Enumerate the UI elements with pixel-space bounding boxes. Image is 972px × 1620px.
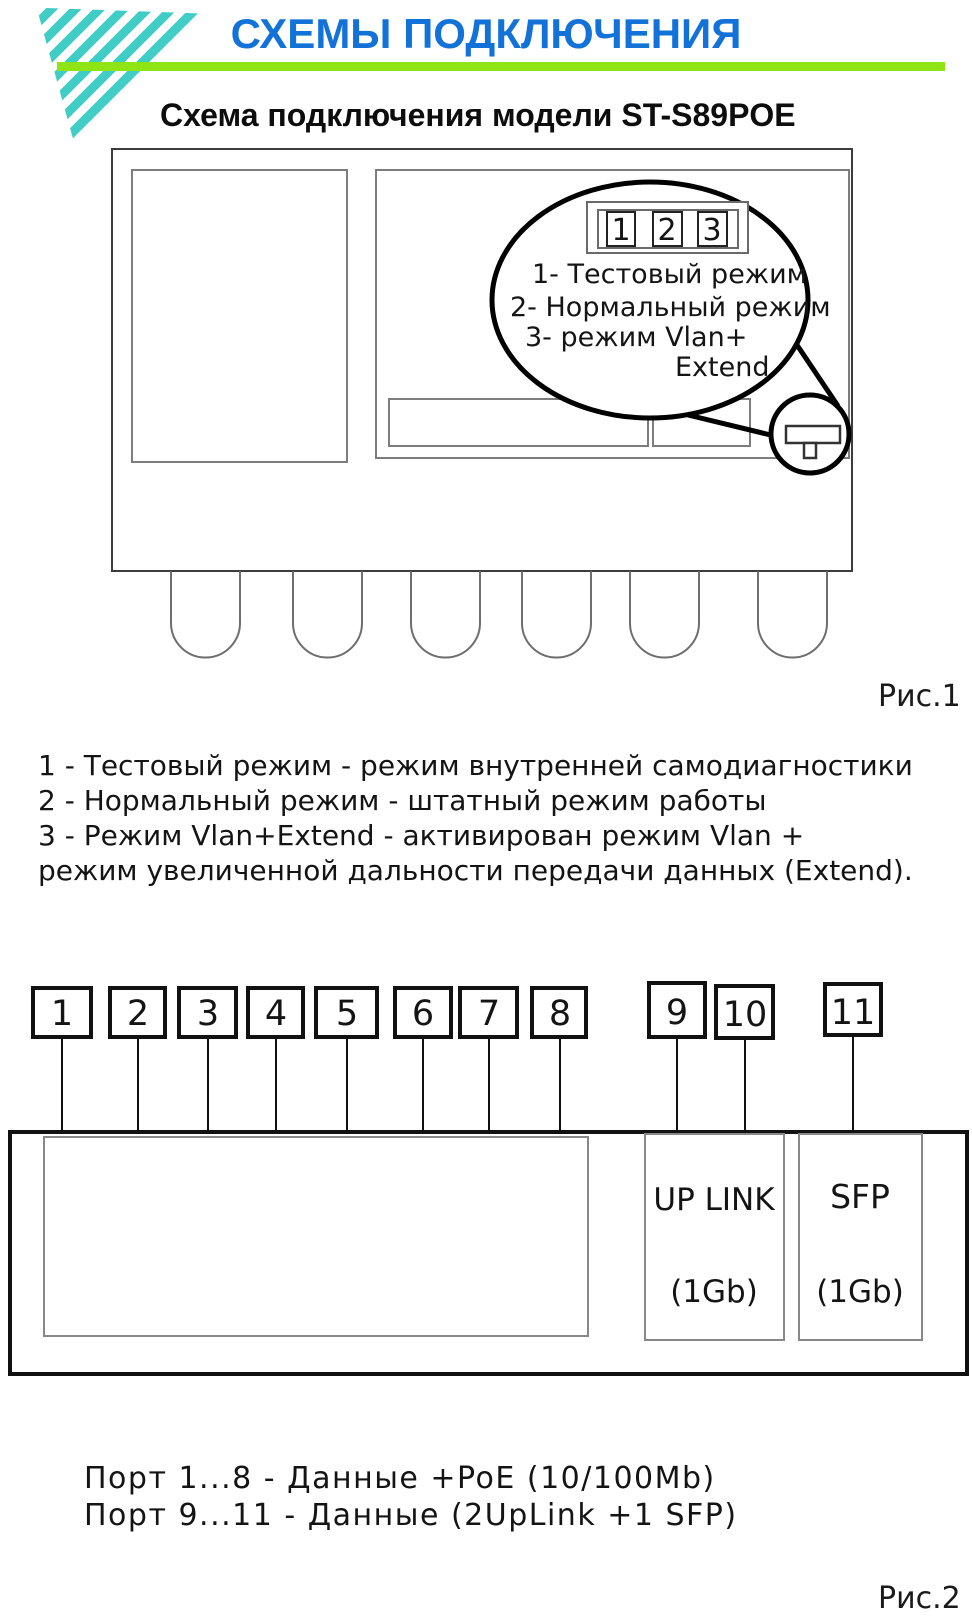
cable-glands — [171, 571, 827, 658]
mode-description-line: 3 - Режим Vlan+Extend - активирован режи… — [38, 818, 948, 853]
uplink-label: UP LINK — [653, 1182, 775, 1218]
svg-text:7: 7 — [478, 994, 500, 1034]
cable-gland — [630, 571, 699, 658]
port-number-label: 11 — [825, 984, 881, 1035]
port-number-label: 10 — [716, 986, 773, 1038]
svg-text:1: 1 — [51, 994, 73, 1034]
port-number-label: 3 — [179, 988, 236, 1037]
mode-descriptions: 1 - Тестовый режим - режим внутренней са… — [38, 748, 948, 888]
port-leader-lines — [62, 1035, 853, 1132]
dip-mode-1: 1- Тестовый режим — [532, 259, 807, 290]
port-number-label: 5 — [316, 988, 377, 1037]
port-number-label: 6 — [395, 988, 451, 1037]
svg-text:10: 10 — [723, 995, 768, 1035]
port-number-label: 8 — [532, 988, 586, 1037]
cable-gland — [758, 571, 827, 658]
port-number-label: 4 — [248, 988, 303, 1037]
ports-note-line: Порт 9...11 - Данные (2UpLink +1 SFP) — [84, 1497, 944, 1534]
port-number-label: 9 — [649, 983, 705, 1037]
dip-digit-2: 2 — [657, 213, 676, 248]
dip-digit-1: 1 — [611, 213, 630, 248]
cable-gland — [171, 571, 240, 658]
dip-digit-3: 3 — [702, 213, 721, 248]
figure1-connection-diagram: 1 2 3 1- Тестовый режим 2- Нормальный ре… — [0, 140, 972, 730]
sfp-label: SFP — [830, 1177, 890, 1216]
svg-text:11: 11 — [831, 993, 876, 1033]
sfp-speed-label: (1Gb) — [816, 1274, 904, 1310]
port-number-label: 2 — [110, 988, 165, 1037]
dip-switch: 1 2 3 — [587, 202, 748, 253]
svg-text:4: 4 — [265, 994, 287, 1034]
dip-mode-3: 3- режим Vlan+ — [525, 322, 747, 353]
svg-text:8: 8 — [549, 994, 571, 1034]
dip-mode-2: 2- Нормальный режим — [510, 292, 831, 323]
ports-note: Порт 1...8 - Данные +PoE (10/100Mb) Порт… — [84, 1460, 944, 1534]
svg-text:9: 9 — [666, 993, 688, 1033]
ports-note-line: Порт 1...8 - Данные +PoE (10/100Mb) — [84, 1460, 944, 1497]
cable-gland — [411, 571, 480, 658]
svg-text:3: 3 — [197, 994, 219, 1034]
svg-text:5: 5 — [336, 994, 358, 1034]
svg-text:2: 2 — [127, 994, 149, 1034]
figure1-caption: Рис.1 — [878, 681, 961, 713]
port-number-labels: 1 2 3 4 5 6 7 8 — [33, 983, 881, 1038]
figure1-heading: Схема подключения модели ST-S89POE — [160, 97, 920, 133]
uplink-speed-label: (1Gb) — [670, 1274, 758, 1310]
device-left-module — [132, 170, 347, 462]
cable-gland — [293, 571, 362, 658]
mode-description-line: 1 - Тестовый режим - режим внутренней са… — [38, 748, 948, 783]
mode-description-line: режим увеличенной дальности передачи дан… — [38, 853, 948, 888]
mode-description-line: 2 - Нормальный режим - штатный режим раб… — [38, 783, 948, 818]
page-title: СХЕМЫ ПОДКЛЮЧЕНИЯ — [0, 12, 972, 56]
cable-gland — [522, 571, 591, 658]
svg-text:6: 6 — [412, 994, 434, 1034]
port-number-label: 1 — [33, 988, 91, 1037]
header-rule — [57, 62, 945, 71]
port-number-label: 7 — [460, 988, 517, 1037]
poe-ports-area — [44, 1137, 588, 1336]
dip-mode-3b: Extend — [675, 352, 770, 383]
figure2-caption: Рис.2 — [878, 1583, 961, 1615]
